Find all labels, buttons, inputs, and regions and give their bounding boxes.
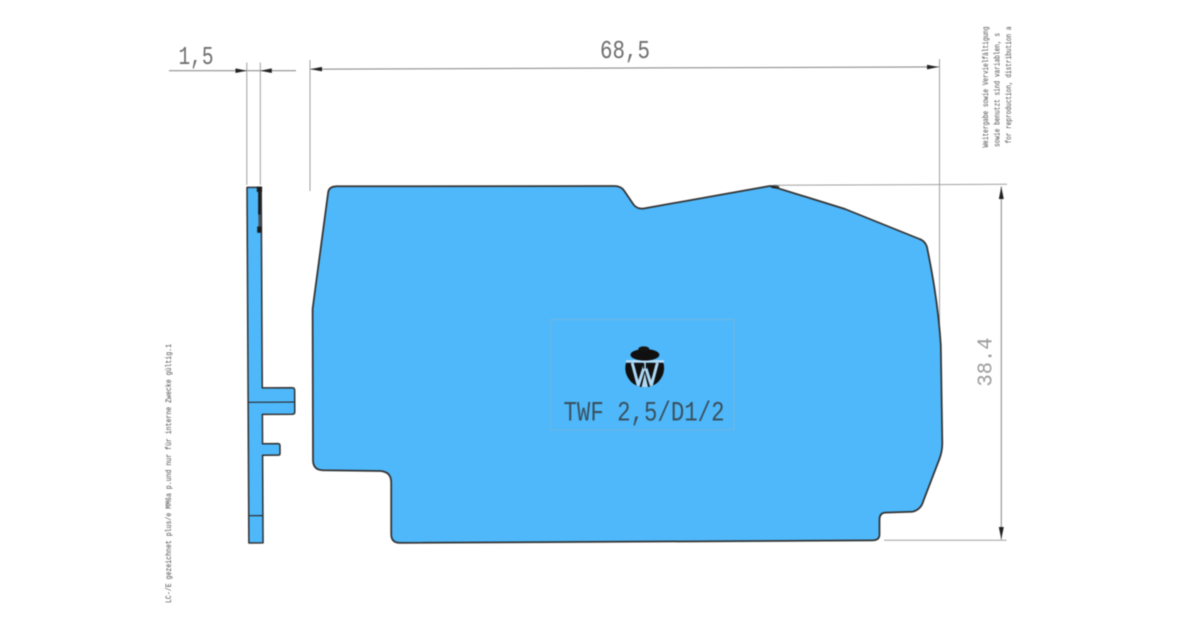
svg-text:1,5: 1,5 [179, 42, 214, 72]
svg-text:68,5: 68,5 [600, 36, 650, 66]
svg-text:38.4: 38.4 [976, 338, 999, 387]
svg-text:TWF 2,5/D1/2: TWF 2,5/D1/2 [564, 399, 725, 430]
svg-text:Weitergabe sowie Vervielfältig: Weitergabe sowie Vervielfältigung [982, 26, 991, 147]
svg-text:for reproduction, distribution: for reproduction, distribution a [1005, 26, 1014, 143]
svg-text:sowie benutzt sind variablen,: sowie benutzt sind variablen, s [994, 33, 1003, 147]
svg-text:LC-/E gezeichnet plus/e MM6a p: LC-/E gezeichnet plus/e MM6a p.und nur f… [165, 344, 174, 603]
